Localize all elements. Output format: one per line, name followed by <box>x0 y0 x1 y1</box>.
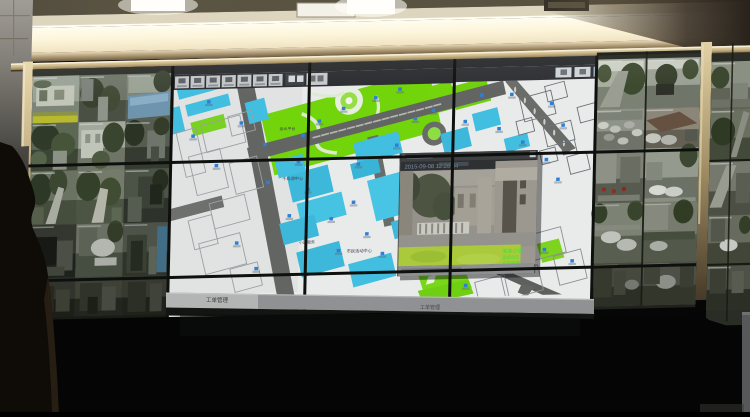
svg-text:工单管理: 工单管理 <box>206 296 229 304</box>
svg-text:亲水平台: 亲水平台 <box>279 125 295 131</box>
svg-text:工单管理: 工单管理 <box>420 304 440 311</box>
